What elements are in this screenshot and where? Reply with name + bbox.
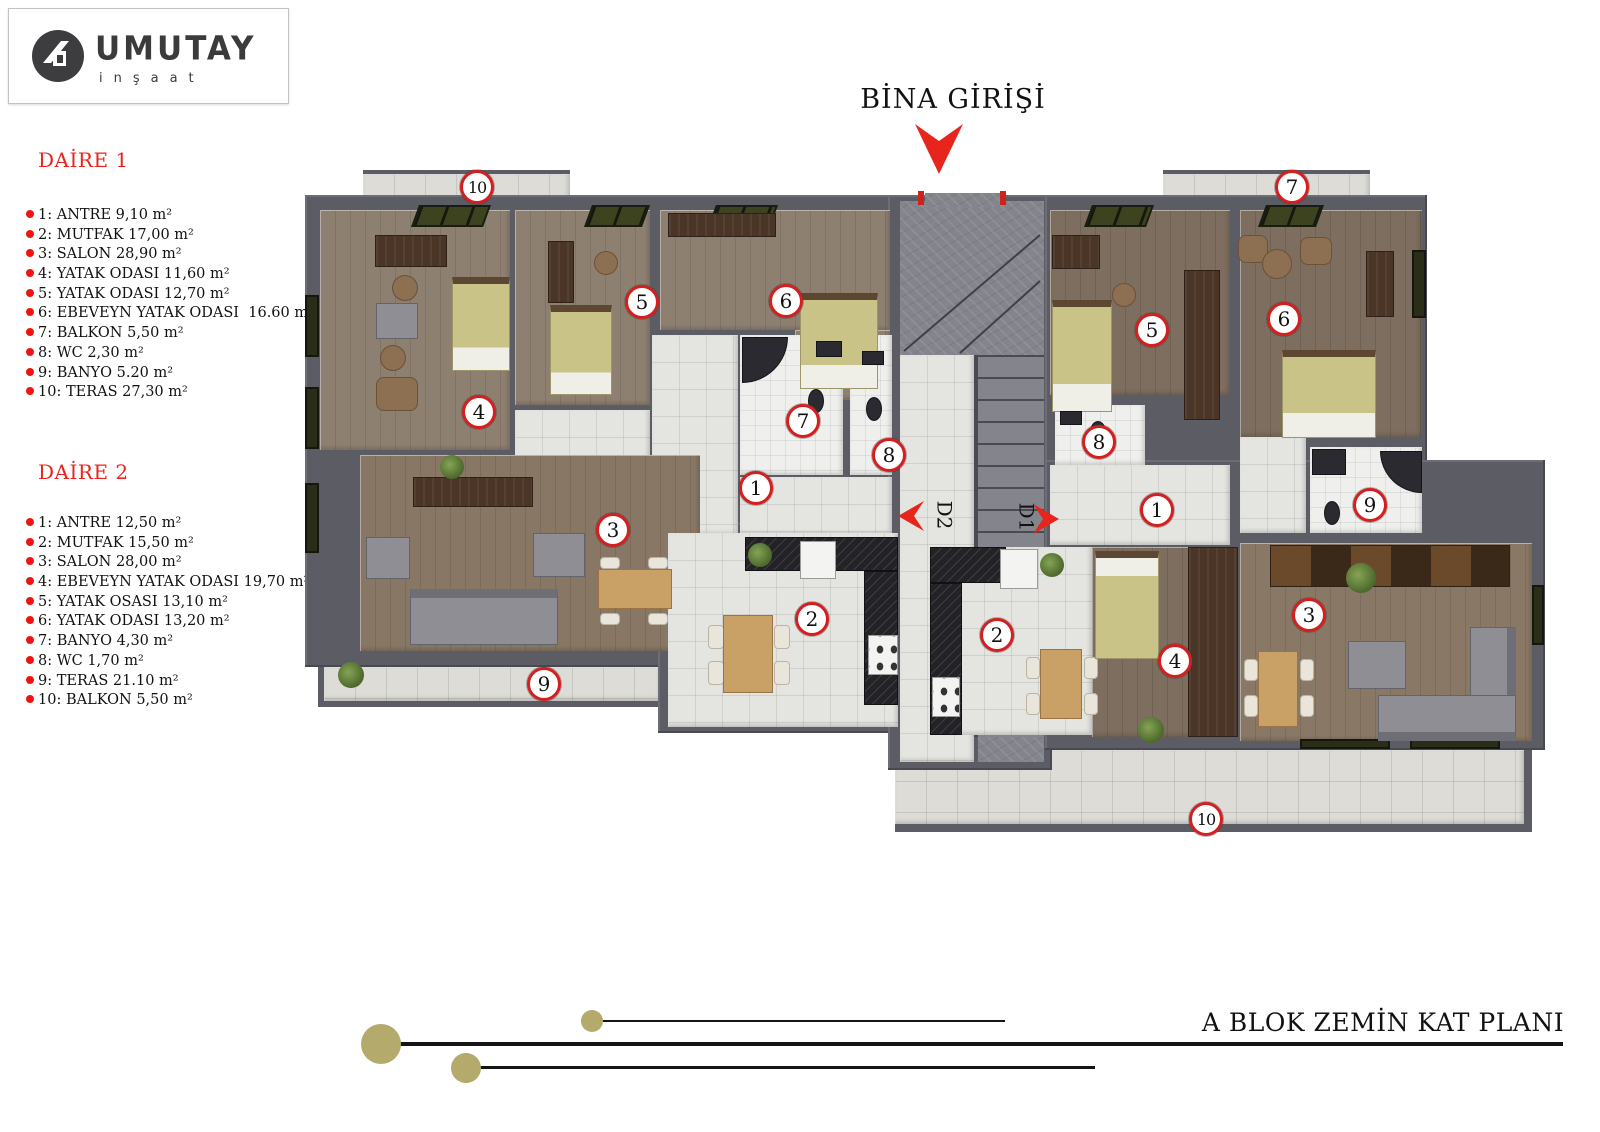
company-logo-subtitle: inşaat bbox=[99, 71, 205, 86]
legend-item: 9: TERAS 21.10 m² bbox=[26, 672, 309, 692]
daire1-title: DAİRE 1 bbox=[38, 148, 129, 172]
daire1-room-list: 1: ANTRE 9,10 m²2: MUTFAK 17,00 m²3: SAL… bbox=[26, 206, 314, 403]
bullet-icon bbox=[26, 695, 34, 703]
legend-item: 6: EBEVEYN YATAK ODASI 16.60 m² bbox=[26, 304, 314, 324]
room-markers-layer: 1056478132975681924310 bbox=[300, 165, 1550, 855]
decorative-dot bbox=[451, 1053, 481, 1083]
bullet-icon bbox=[26, 676, 34, 684]
room-marker-d2-2: 2 bbox=[980, 618, 1014, 652]
room-marker-d1-5: 5 bbox=[625, 285, 659, 319]
company-logo-brand: UMUTAY bbox=[95, 30, 256, 68]
room-marker-d2-10: 10 bbox=[1189, 802, 1223, 836]
daire2-title: DAİRE 2 bbox=[38, 460, 129, 484]
bullet-icon bbox=[26, 616, 34, 624]
room-marker-d1-4: 4 bbox=[462, 395, 496, 429]
room-marker-d1-7: 7 bbox=[786, 404, 820, 438]
room-marker-d1-9: 9 bbox=[527, 667, 561, 701]
bullet-icon bbox=[26, 328, 34, 336]
bullet-icon bbox=[26, 538, 34, 546]
legend-item: 1: ANTRE 12,50 m² bbox=[26, 514, 309, 534]
legend-item: 6: YATAK ODASI 13,20 m² bbox=[26, 612, 309, 632]
legend-item: 2: MUTFAK 17,00 m² bbox=[26, 226, 314, 246]
bullet-icon bbox=[26, 210, 34, 218]
company-logo-icon bbox=[31, 29, 85, 83]
room-marker-d2-8: 8 bbox=[1082, 425, 1116, 459]
plan-title: A BLOK ZEMİN KAT PLANI bbox=[1200, 1008, 1566, 1037]
bullet-icon bbox=[26, 656, 34, 664]
daire2-room-list: 1: ANTRE 12,50 m²2: MUTFAK 15,50 m²3: SA… bbox=[26, 514, 309, 711]
bullet-icon bbox=[26, 289, 34, 297]
decorative-dot bbox=[361, 1024, 401, 1064]
room-marker-d2-1: 1 bbox=[1140, 493, 1174, 527]
bullet-icon bbox=[26, 577, 34, 585]
legend-item: 7: BALKON 5,50 m² bbox=[26, 324, 314, 344]
decorative-dot bbox=[581, 1010, 603, 1032]
decorative-line bbox=[600, 1020, 1005, 1022]
bullet-icon bbox=[26, 368, 34, 376]
room-marker-d2-5: 5 bbox=[1135, 313, 1169, 347]
legend-item: 4: YATAK ODASI 11,60 m² bbox=[26, 265, 314, 285]
legend-item: 8: WC 1,70 m² bbox=[26, 652, 309, 672]
room-marker-d2-7: 7 bbox=[1275, 170, 1309, 204]
legend-item: 10: TERAS 27,30 m² bbox=[26, 383, 314, 403]
title-leader-line bbox=[395, 1042, 1563, 1046]
legend-item: 5: YATAK OSASI 13,10 m² bbox=[26, 593, 309, 613]
bullet-icon bbox=[26, 387, 34, 395]
legend-item: 10: BALKON 5,50 m² bbox=[26, 691, 309, 711]
room-marker-d1-6: 6 bbox=[769, 284, 803, 318]
legend-item: 5: YATAK ODASI 12,70 m² bbox=[26, 285, 314, 305]
bullet-icon bbox=[26, 308, 34, 316]
room-marker-d1-8: 8 bbox=[872, 438, 906, 472]
room-marker-d2-3: 3 bbox=[1292, 598, 1326, 632]
floor-plan: D2 D1 1056478132975681924310 bbox=[300, 165, 1550, 855]
bullet-icon bbox=[26, 636, 34, 644]
room-marker-d1-1: 1 bbox=[739, 471, 773, 505]
legend-item: 7: BANYO 4,30 m² bbox=[26, 632, 309, 652]
legend-item: 3: SALON 28,90 m² bbox=[26, 245, 314, 265]
bullet-icon bbox=[26, 249, 34, 257]
room-marker-d2-4: 4 bbox=[1158, 644, 1192, 678]
legend-item: 8: WC 2,30 m² bbox=[26, 344, 314, 364]
room-marker-d2-6: 6 bbox=[1267, 302, 1301, 336]
building-entrance-label: BİNA GİRİŞİ bbox=[798, 84, 1108, 115]
room-marker-d1-2: 2 bbox=[795, 602, 829, 636]
decorative-line bbox=[478, 1066, 1095, 1069]
legend-item: 2: MUTFAK 15,50 m² bbox=[26, 534, 309, 554]
bullet-icon bbox=[26, 597, 34, 605]
bullet-icon bbox=[26, 557, 34, 565]
room-marker-d2-9: 9 bbox=[1353, 488, 1387, 522]
bullet-icon bbox=[26, 269, 34, 277]
legend-item: 4: EBEVEYN YATAK ODASI 19,70 m² bbox=[26, 573, 309, 593]
legend-item: 9: BANYO 5.20 m² bbox=[26, 364, 314, 384]
room-marker-d1-3: 3 bbox=[596, 513, 630, 547]
legend-item: 3: SALON 28,00 m² bbox=[26, 553, 309, 573]
bullet-icon bbox=[26, 518, 34, 526]
bullet-icon bbox=[26, 230, 34, 238]
room-marker-d1-10: 10 bbox=[460, 170, 494, 204]
bullet-icon bbox=[26, 348, 34, 356]
company-logo-box: UMUTAY inşaat bbox=[8, 8, 289, 104]
legend-item: 1: ANTRE 9,10 m² bbox=[26, 206, 314, 226]
